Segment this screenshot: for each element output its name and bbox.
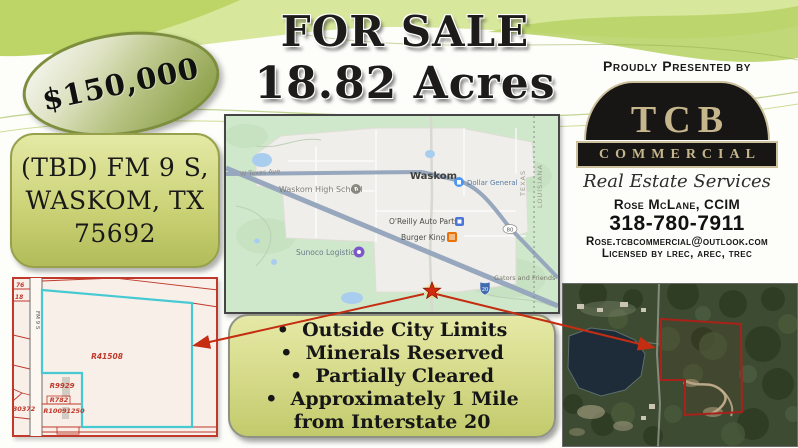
agent-phone: 318-780-7911 xyxy=(609,212,745,236)
plat-label-r10091250: R10091250 xyxy=(43,407,85,415)
map-label-louisiana: LOUISIANA xyxy=(536,164,544,208)
address-line-3: 75692 xyxy=(74,217,156,250)
plat-road-label: FM 9 S xyxy=(34,311,40,330)
logo-banner: COMMERCIAL xyxy=(576,141,778,168)
aerial-photo xyxy=(562,283,798,447)
route-80-shield-text: 80 xyxy=(507,228,514,234)
plat-label-r9929: R9929 xyxy=(50,382,75,390)
map-label-logistics: Sunoco Logistics xyxy=(296,248,358,257)
flyer-canvas: $150,000 FOR SALE 18.82 Acres (TBD) FM 9… xyxy=(0,0,798,448)
headline: FOR SALE 18.82 Acres xyxy=(222,6,588,110)
plat-label-top2: 18 xyxy=(15,294,23,301)
logo-banner-text: COMMERCIAL xyxy=(593,147,761,163)
features-list: Outside City Limits Minerals Reserved Pa… xyxy=(230,319,554,434)
address-line-1: (TBD) FM 9 S, xyxy=(21,151,209,184)
map-label-auto-parts: O'Reilly Auto Parts xyxy=(389,217,458,226)
map-label-texas: TEXAS xyxy=(519,170,527,197)
agent-email: Rose.tcbcommercial@outlook.com xyxy=(586,236,768,248)
address-line-2: WASKOM, TX xyxy=(25,184,204,217)
plat-label-30372: 30372 xyxy=(13,405,36,413)
address-box: (TBD) FM 9 S, WASKOM, TX 75692 xyxy=(10,133,220,268)
acreage-title: 18.82 Acres xyxy=(222,58,588,110)
map-label-town: Waskom xyxy=(410,171,457,182)
for-sale-title: FOR SALE xyxy=(222,6,588,58)
map-label-school: Waskom High School xyxy=(279,185,363,194)
dollar-general-icon-glyph xyxy=(457,180,461,185)
map-label-attraction: Gators and Friends xyxy=(494,274,556,282)
plat-label-top1: 76 xyxy=(16,282,24,289)
logo-arch: TCB xyxy=(584,81,770,140)
logo-tagline: Real Estate Services xyxy=(583,171,771,192)
feature-item: Minerals Reserved xyxy=(244,342,540,365)
plat-label-r782: R782 xyxy=(50,396,69,404)
location-map: W Texas Ave Waskom High School Waskom Do… xyxy=(224,114,560,314)
feature-item: Approximately 1 Mile from Interstate 20 xyxy=(244,388,540,434)
sunoco-icon-glyph xyxy=(357,250,361,254)
map-label-restaurant: Burger King xyxy=(401,233,445,242)
feature-item: Partially Cleared xyxy=(244,365,540,388)
presented-by-heading: Proudly Presented by xyxy=(603,58,751,74)
oreilly-icon-glyph xyxy=(458,220,462,224)
logo-acronym: TCB xyxy=(624,100,730,140)
features-box: Outside City Limits Minerals Reserved Pa… xyxy=(228,314,556,438)
price-text: $150,000 xyxy=(40,51,203,117)
feature-item: Outside City Limits xyxy=(244,319,540,342)
license-info: Licensed by lrec, arec, trec xyxy=(602,248,752,260)
map-label-store: Dollar General xyxy=(467,179,518,187)
plat-label-main: R41508 xyxy=(91,352,123,361)
tcb-logo: TCB COMMERCIAL Real Estate Services xyxy=(576,81,778,192)
presenter-panel: Proudly Presented by TCB COMMERCIAL Real… xyxy=(556,58,798,260)
plat-map: R41508 R9929 R782 R10091250 30372 76 18 … xyxy=(12,277,218,437)
agent-name: Rose McLane, CCIM xyxy=(614,197,740,212)
interstate-20-shield-text: 20 xyxy=(482,287,488,293)
